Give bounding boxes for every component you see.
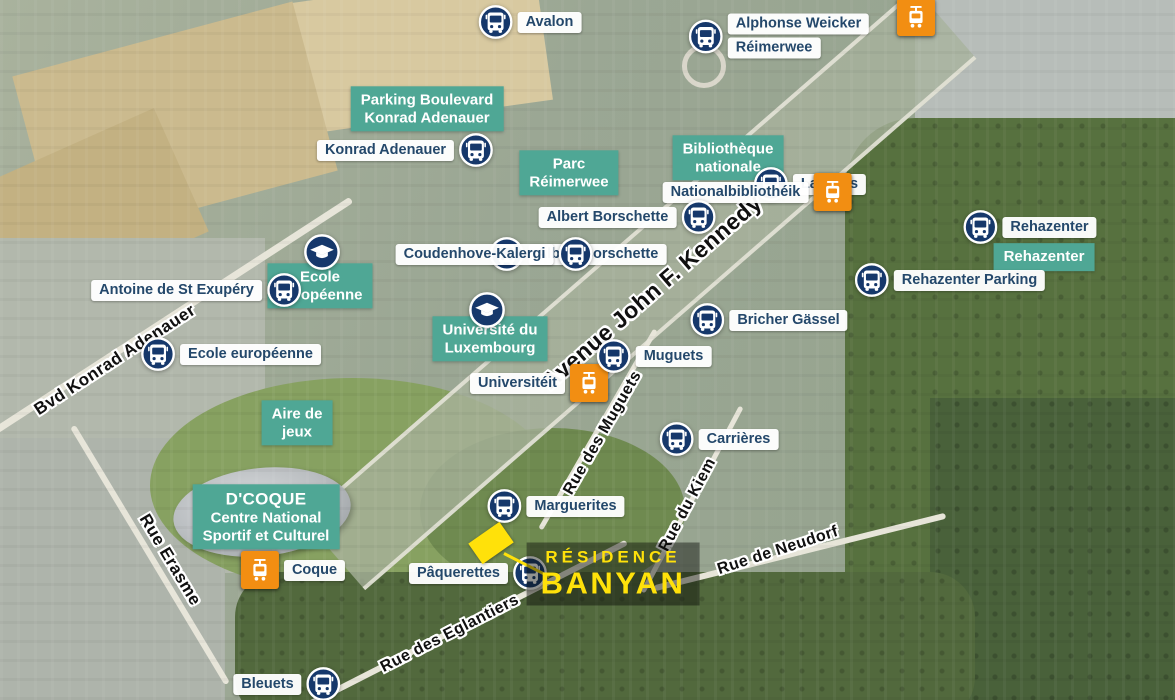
stop-label-group: Pâquerettes <box>409 563 508 584</box>
poi-label-line: Réimerwee <box>529 173 608 191</box>
bus-stop-marker: Muguets <box>597 339 712 373</box>
poi-label-line: Sportif et Culturel <box>203 527 330 545</box>
poi-label-line: Konrad Adenauer <box>361 109 494 127</box>
stop-label-group: Konrad Adenauer <box>317 140 454 161</box>
stop-label: Rehazenter <box>1002 217 1096 238</box>
street-label: Rue de Neudorf <box>715 523 841 579</box>
tram-icon <box>813 173 851 211</box>
bus-icon <box>307 667 341 700</box>
stop-label: Réimerwee <box>728 38 821 59</box>
stop-label: Coque <box>284 560 345 581</box>
stop-label: Rehazenter Parking <box>894 270 1045 291</box>
poi-label-line: Parking Boulevard <box>361 91 494 109</box>
stop-label-group: Alphonse WeickerRéimerwee <box>728 14 869 59</box>
poi-label-line: D'COQUE <box>203 489 330 509</box>
stop-label: Antoine de St Exupéry <box>91 280 262 301</box>
tram-stop-marker: Universitéit <box>470 364 608 402</box>
stop-label-group: Coudenhove-Kalergi <box>396 244 554 265</box>
bus-icon <box>267 273 301 307</box>
stop-label-group: Rehazenter <box>1002 217 1096 238</box>
tram-icon <box>241 551 279 589</box>
bus-icon <box>855 263 889 297</box>
bus-stop-marker: Bleuets <box>233 667 340 700</box>
bus-icon <box>479 5 513 39</box>
graduation-cap-icon <box>469 292 505 328</box>
stop-label-group: Coque <box>284 560 345 581</box>
stop-label-group: Bricher Gässel <box>729 310 847 331</box>
bus-icon <box>141 337 175 371</box>
bus-stop-marker: Coudenhove-Kalergi <box>396 237 593 271</box>
stop-label-group: Bleuets <box>233 674 301 695</box>
stop-label: Carrières <box>699 429 779 450</box>
poi-label: Parking BoulevardKonrad Adenauer <box>351 86 504 131</box>
stop-label-group: Antoine de St Exupéry <box>91 280 262 301</box>
stop-label-group: Muguets <box>636 346 712 367</box>
bus-stop-marker: Bricher Gässel <box>690 303 847 337</box>
poi-label: Aire dejeux <box>262 400 333 445</box>
stop-label: Pâquerettes <box>409 563 508 584</box>
bus-icon <box>597 339 631 373</box>
stop-label-group: Marguerites <box>526 496 624 517</box>
poi-label: ParcRéimerwee <box>519 150 618 195</box>
residence-name-line1: RÉSIDENCE <box>541 548 686 568</box>
school-stop-marker <box>469 292 505 328</box>
bus-icon <box>487 489 521 523</box>
stop-label: Alphonse Weicker <box>728 14 869 35</box>
poi-label-line: Bibliothèque <box>683 140 774 158</box>
bus-icon <box>558 237 592 271</box>
tram-stop-marker <box>897 0 935 36</box>
stop-label-group: Avalon <box>518 12 582 33</box>
bus-stop-marker: Rehazenter <box>963 210 1096 244</box>
stop-label: Muguets <box>636 346 712 367</box>
stop-label-group: Rehazenter Parking <box>894 270 1045 291</box>
bus-icon <box>689 19 723 53</box>
poi-label: D'COQUECentre NationalSportif et Culture… <box>193 484 340 549</box>
bus-stop-marker: Carrières <box>660 422 779 456</box>
bus-icon <box>690 303 724 337</box>
stop-label-group: Albert Borschette <box>539 207 677 228</box>
bus-stop-marker: Alphonse WeickerRéimerwee <box>689 14 869 59</box>
stop-label: Bleuets <box>233 674 301 695</box>
stop-label-group: Universitéit <box>470 373 565 394</box>
poi-label-line: Aire de <box>272 405 323 423</box>
stop-label-group: Ecole européenne <box>180 344 321 365</box>
residence-name-label: RÉSIDENCE BANYAN <box>527 543 700 606</box>
bus-icon <box>963 210 997 244</box>
bus-stop-marker: Rehazenter Parking <box>855 263 1045 297</box>
poi-label-line: Luxembourg <box>442 339 537 357</box>
bus-stop-marker: Ecole européenne <box>141 337 321 371</box>
bus-stop-marker: Konrad Adenauer <box>317 133 493 167</box>
school-stop-marker <box>304 234 340 270</box>
tram-icon <box>897 0 935 36</box>
stop-label: Konrad Adenauer <box>317 140 454 161</box>
poi-label-line: jeux <box>272 423 323 441</box>
graduation-cap-icon <box>304 234 340 270</box>
poi-label-line: Parc <box>529 155 608 173</box>
stop-label: Albert Borschette <box>539 207 677 228</box>
stop-label: Bricher Gässel <box>729 310 847 331</box>
map-canvas: Bvd Konrad AdenauerRue ErasmeAvenue John… <box>0 0 1175 700</box>
bus-icon <box>459 133 493 167</box>
bus-icon <box>681 200 715 234</box>
poi-label-line: Centre National <box>203 509 330 527</box>
stop-label: Universitéit <box>470 373 565 394</box>
tram-stop-marker: Coque <box>241 551 345 589</box>
stop-label: Ecole européenne <box>180 344 321 365</box>
stop-label: Marguerites <box>526 496 624 517</box>
stop-label: Avalon <box>518 12 582 33</box>
bus-stop-marker: Avalon <box>479 5 582 39</box>
stop-label-group: Carrières <box>699 429 779 450</box>
bus-stop-marker: Marguerites <box>487 489 624 523</box>
bus-stop-marker: Antoine de St Exupéry <box>91 273 301 307</box>
bus-icon <box>660 422 694 456</box>
stop-label: Coudenhove-Kalergi <box>396 244 554 265</box>
residence-name-line2: BANYAN <box>541 568 686 599</box>
bus-stop-marker: Albert Borschette <box>539 200 716 234</box>
